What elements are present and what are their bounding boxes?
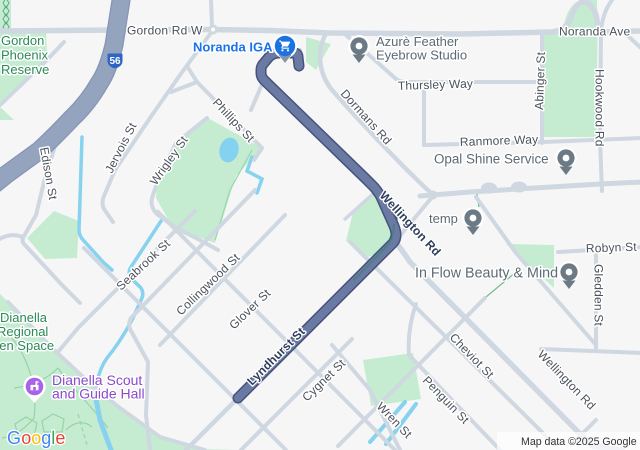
svg-text:Ranmore Way: Ranmore Way <box>460 132 539 149</box>
svg-text:Gledden St: Gledden St <box>592 264 606 327</box>
svg-text:Hookwood Rd: Hookwood Rd <box>593 69 607 147</box>
svg-text:Robyn St: Robyn St <box>586 240 638 256</box>
svg-text:Noranda IGA: Noranda IGA <box>193 40 273 55</box>
svg-text:Abinger St: Abinger St <box>532 51 548 110</box>
svg-text:and Guide Hall: and Guide Hall <box>52 386 145 402</box>
svg-text:temp: temp <box>429 211 458 226</box>
svg-text:Reserve: Reserve <box>1 62 49 77</box>
svg-text:o: o <box>21 428 31 448</box>
svg-text:g: g <box>41 428 51 448</box>
svg-text:Phoenix: Phoenix <box>1 48 48 63</box>
svg-text:e: e <box>55 428 65 448</box>
svg-text:Thursley Way: Thursley Way <box>398 76 474 93</box>
svg-text:Regional: Regional <box>0 324 48 339</box>
svg-text:Gordon Rd W: Gordon Rd W <box>127 24 203 38</box>
svg-text:56: 56 <box>109 56 121 67</box>
svg-text:Eyebrow Studio: Eyebrow Studio <box>376 48 467 63</box>
svg-text:Map data ©2025 Google: Map data ©2025 Google <box>521 436 637 448</box>
svg-text:Opal Shine Service: Opal Shine Service <box>434 152 549 167</box>
svg-text:Gordon: Gordon <box>1 33 44 48</box>
svg-text:o: o <box>31 428 41 448</box>
svg-text:In Flow Beauty & Mind: In Flow Beauty & Mind <box>415 266 558 282</box>
svg-text:pen Space: pen Space <box>0 338 54 353</box>
svg-text:G: G <box>7 428 21 448</box>
svg-text:Noranda Ave: Noranda Ave <box>559 25 630 39</box>
svg-text:Dianella: Dianella <box>0 310 48 325</box>
